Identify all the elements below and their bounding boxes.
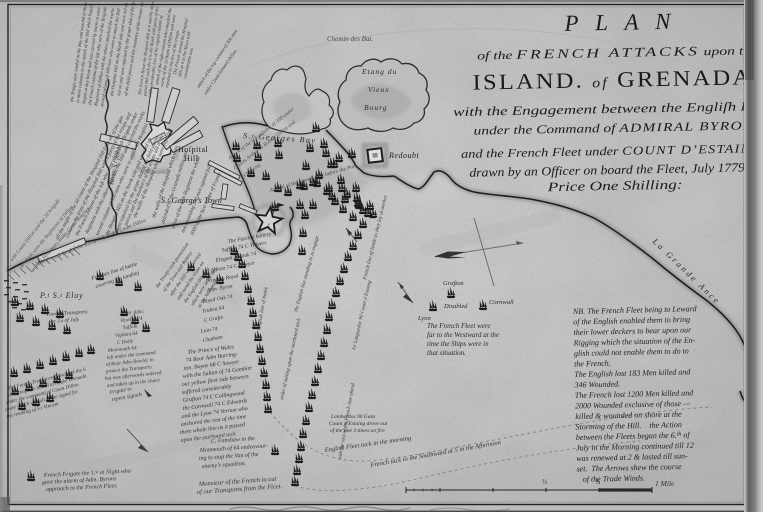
svg-text:the French.: the French. [574, 359, 611, 369]
svg-text:1 Mile: 1 Mile [655, 479, 675, 488]
svg-text:½: ½ [542, 478, 548, 486]
svg-text:that situation.: that situation. [427, 349, 466, 357]
svg-text:Disabled: Disabled [443, 303, 468, 310]
svg-text:Cornwall: Cornwall [489, 299, 514, 306]
svg-text:of the Trade Winds.: of the Trade Winds. [583, 473, 645, 483]
svg-text:Etang du: Etang du [361, 67, 397, 76]
svg-text:far to the Westward at the: far to the Westward at the [427, 331, 499, 339]
svg-text:Chemin des Bat.: Chemin des Bat. [327, 35, 373, 43]
svg-text:Lyon: Lyon [417, 315, 431, 322]
svg-text:346 Wounded.: 346 Wounded. [574, 379, 621, 389]
svg-text:Price One Shilling:: Price One Shilling: [546, 177, 683, 195]
svg-text:of the line 3 times on fire: of the line 3 times on fire [330, 427, 385, 434]
svg-text:time the Ships were in: time the Ships were in [427, 340, 489, 348]
svg-text:Bourg: Bourg [364, 103, 387, 112]
svg-text:The French Fleet were: The French Fleet were [427, 322, 490, 330]
svg-text:Grafton: Grafton [443, 280, 464, 287]
svg-text:Redoubt: Redoubt [388, 151, 419, 160]
svg-text:Vieux: Vieux [368, 85, 390, 94]
svg-text:Lamberdos 90 Guns: Lamberdos 90 Guns [330, 414, 375, 420]
svg-text:Count d’Estaing drove out: Count d’Estaing drove out [329, 421, 388, 427]
